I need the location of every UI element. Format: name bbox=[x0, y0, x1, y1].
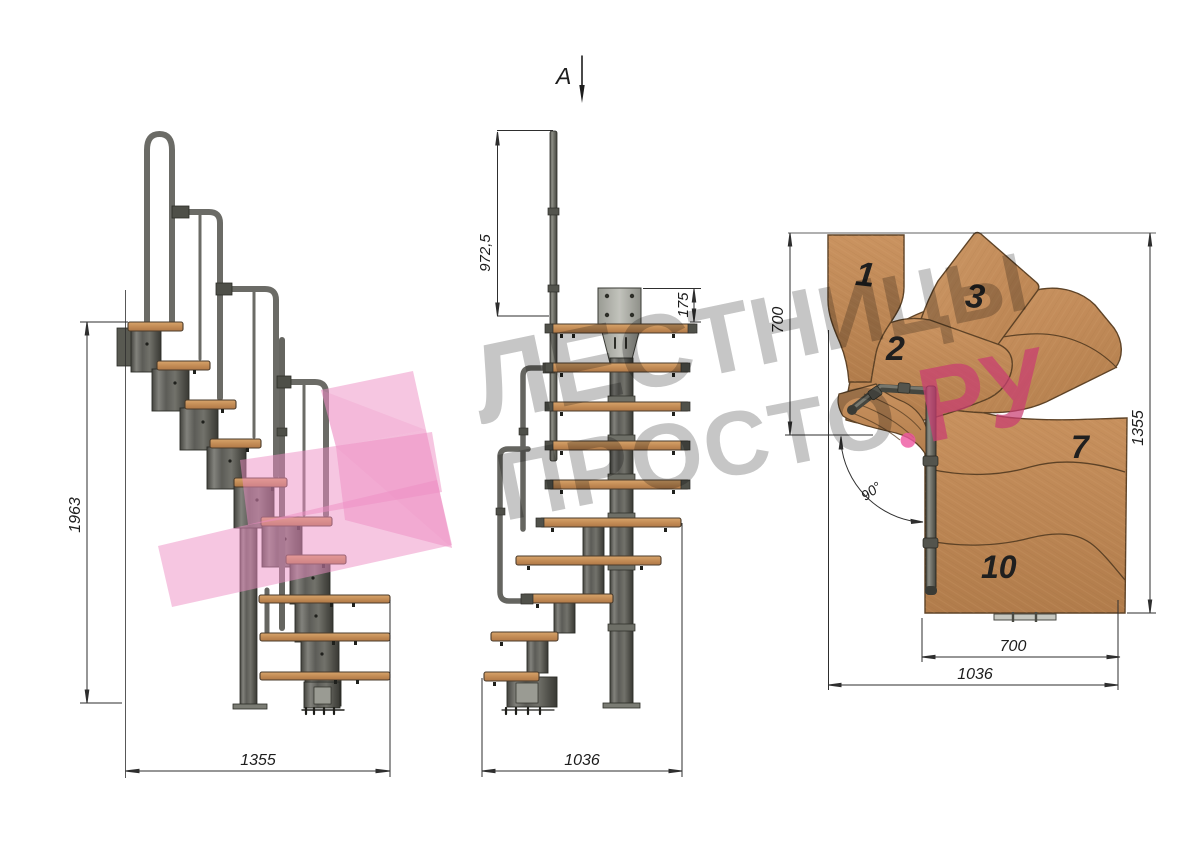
svg-text:7: 7 bbox=[1071, 429, 1091, 465]
svg-text:10: 10 bbox=[981, 549, 1017, 585]
svg-text:1963: 1963 bbox=[67, 497, 84, 533]
svg-text:972,5: 972,5 bbox=[477, 234, 494, 272]
svg-text:1355: 1355 bbox=[240, 752, 276, 769]
svg-text:A: A bbox=[554, 63, 571, 89]
svg-text:700: 700 bbox=[1000, 638, 1027, 655]
svg-text:1036: 1036 bbox=[957, 666, 993, 683]
svg-text:РУ: РУ bbox=[909, 325, 1059, 465]
svg-text:1355: 1355 bbox=[1130, 410, 1147, 446]
svg-text:1036: 1036 bbox=[564, 752, 600, 769]
